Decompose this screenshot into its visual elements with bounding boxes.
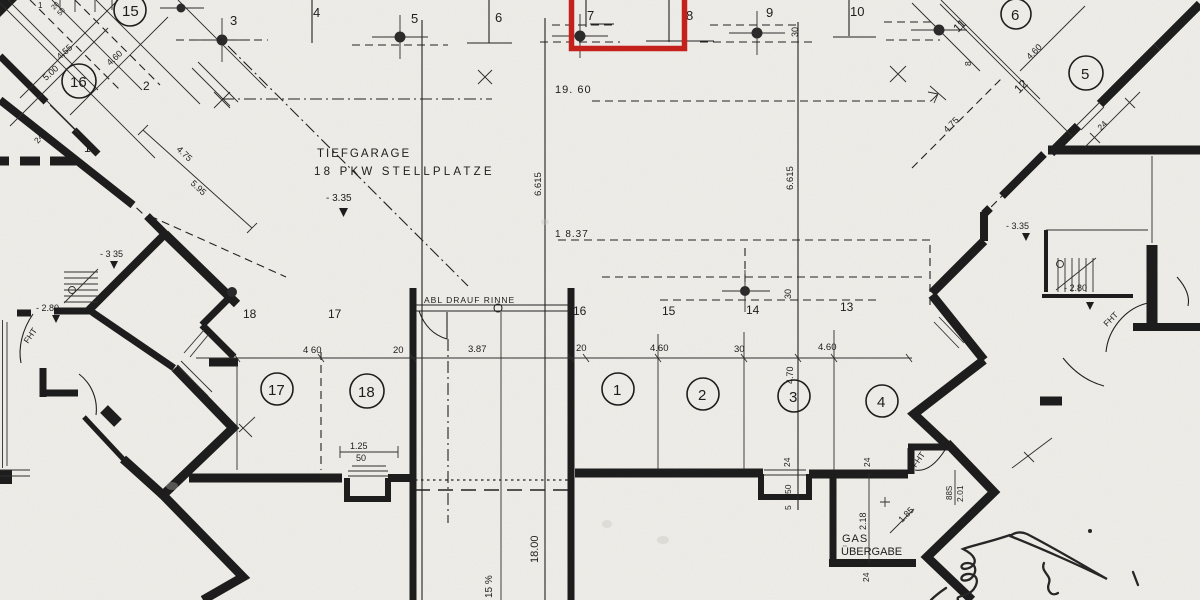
svg-text:8: 8 [963, 61, 973, 66]
svg-text:7: 7 [587, 8, 594, 23]
svg-text:1: 1 [84, 141, 91, 155]
svg-text:2: 2 [698, 387, 706, 404]
svg-text:3: 3 [789, 389, 797, 406]
svg-text:4: 4 [877, 394, 885, 411]
svg-text:GAS: GAS [842, 533, 868, 545]
svg-text:2.18: 2.18 [858, 512, 868, 530]
svg-text:30: 30 [783, 289, 793, 299]
svg-text:20: 20 [393, 345, 404, 356]
svg-text:18: 18 [243, 307, 257, 321]
svg-text:2: 2 [143, 79, 150, 93]
svg-text:1.25: 1.25 [350, 441, 368, 451]
svg-text:6.615: 6.615 [785, 166, 796, 190]
svg-text:ABL DRAUF RINNE: ABL DRAUF RINNE [424, 295, 515, 305]
svg-text:24: 24 [862, 457, 872, 467]
svg-text:18: 18 [358, 384, 375, 401]
svg-text:5: 5 [783, 505, 793, 510]
svg-text:24: 24 [861, 572, 871, 582]
svg-text:- 3.35: - 3.35 [1006, 221, 1029, 231]
svg-text:18.00: 18.00 [529, 535, 541, 563]
svg-text:30: 30 [734, 344, 745, 355]
svg-text:6.615: 6.615 [533, 172, 544, 196]
svg-text:10: 10 [850, 4, 864, 19]
svg-text:14: 14 [746, 303, 760, 317]
svg-text:- 2.80: - 2.80 [36, 303, 59, 313]
svg-text:15: 15 [122, 3, 139, 20]
svg-text:4.60: 4.60 [818, 342, 837, 353]
svg-text:ÜBERGABE: ÜBERGABE [841, 546, 902, 558]
svg-text:17: 17 [268, 382, 285, 399]
svg-text:16: 16 [573, 304, 587, 318]
svg-text:19. 60: 19. 60 [555, 84, 592, 96]
svg-text:15: 15 [662, 304, 676, 318]
svg-text:15 %: 15 % [484, 575, 495, 598]
svg-text:4 60: 4 60 [303, 345, 322, 356]
svg-text:- 3 35: - 3 35 [100, 249, 123, 259]
svg-text:6: 6 [495, 10, 502, 25]
svg-text:6: 6 [1011, 7, 1019, 24]
svg-text:2.01: 2.01 [955, 485, 965, 502]
svg-text:50: 50 [783, 484, 793, 494]
svg-text:20: 20 [576, 343, 587, 354]
svg-text:24: 24 [782, 457, 792, 467]
svg-text:4.60: 4.60 [650, 343, 669, 354]
svg-text:3.87: 3.87 [468, 344, 487, 355]
svg-text:5: 5 [411, 11, 418, 26]
svg-text:1 8.37: 1 8.37 [555, 229, 589, 240]
svg-text:3: 3 [230, 13, 237, 28]
svg-text:13: 13 [840, 300, 854, 314]
svg-text:18 PKW STELLPLATZE: 18 PKW STELLPLATZE [314, 166, 495, 178]
svg-text:- 3.35: - 3.35 [326, 193, 352, 204]
svg-text:9: 9 [766, 5, 773, 20]
svg-text:88S: 88S [945, 486, 954, 500]
svg-text:16: 16 [70, 74, 87, 91]
svg-text:50: 50 [356, 453, 366, 463]
svg-text:4: 4 [313, 5, 320, 20]
svg-text:TIEFGARAGE: TIEFGARAGE [317, 148, 411, 160]
svg-text:17: 17 [328, 307, 342, 321]
svg-text:5: 5 [1081, 66, 1089, 83]
svg-text:1: 1 [38, 1, 43, 10]
svg-text:30: 30 [790, 27, 800, 37]
svg-text:- 2.80: - 2.80 [1064, 283, 1087, 293]
svg-text:1: 1 [613, 382, 621, 399]
